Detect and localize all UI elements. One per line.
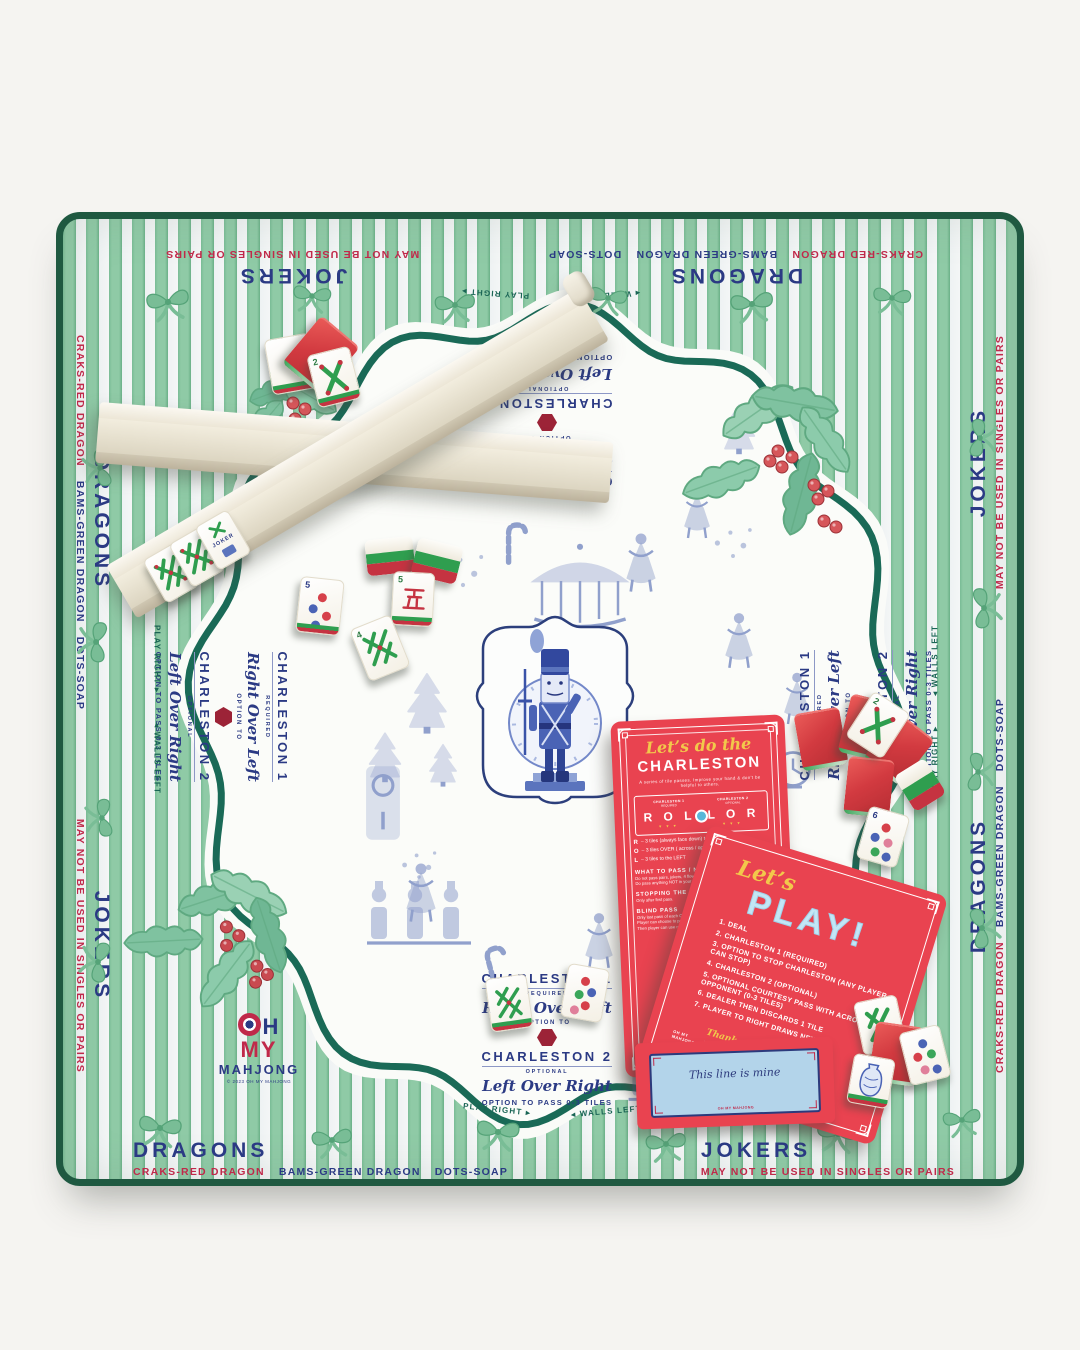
card-subtitle: A series of tile passes. Improve your ha… <box>631 774 769 790</box>
product-photo-stage: DRAGONS CRAKS-RED DRAGON BAMS-GREEN DRAG… <box>0 0 1080 1350</box>
tag-mini-logo: OH MY MAHJONG <box>653 1103 819 1113</box>
mahjong-tile-flower <box>560 963 611 1023</box>
tag-message: This line is mine <box>651 1064 817 1083</box>
mahjong-tile-lattice <box>484 973 533 1032</box>
mahjong-tile-soap <box>846 1053 896 1110</box>
tag-panel: This line is mine OH MY MAHJONG <box>649 1048 821 1118</box>
mahjong-tile-5-crak: 5 <box>391 571 436 627</box>
mahjong-tile-flower-5: 5 <box>295 576 345 636</box>
mahjong-tile-side <box>364 536 416 577</box>
charleston-pass-diagram: CHARLESTON 1 REQUIRED R O L ▾▾▾ CHARLEST… <box>634 790 770 836</box>
name-plate-tag: This line is mine OH MY MAHJONG <box>635 1037 836 1130</box>
